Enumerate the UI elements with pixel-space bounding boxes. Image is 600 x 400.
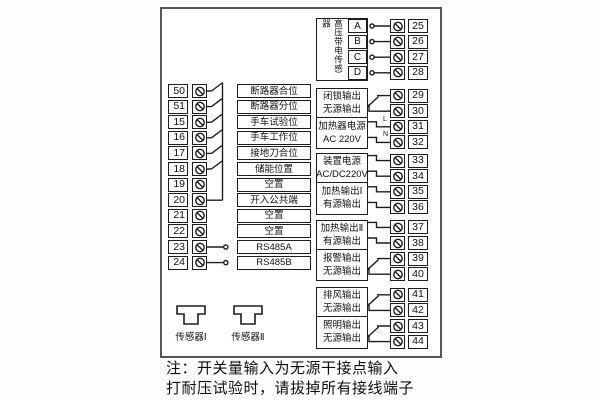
left-terminal-label: 断路器分位 xyxy=(237,100,311,114)
left-terminal-number: 24 xyxy=(168,256,188,270)
right-terminal-cell xyxy=(390,303,405,317)
screw-terminal-icon xyxy=(392,137,404,148)
screw-terminal-icon xyxy=(392,155,404,166)
left-terminal-label: 手车工作位 xyxy=(237,131,311,145)
sensor-2-icon xyxy=(234,306,262,324)
left-terminal-label: 空置 xyxy=(237,209,311,223)
right-terminal-number: 36 xyxy=(408,200,428,214)
right-terminal-number: 29 xyxy=(408,89,428,103)
left-terminal-cell xyxy=(192,209,207,223)
screw-terminal-icon xyxy=(392,171,404,182)
right-terminal-cell xyxy=(390,319,405,333)
left-terminal-number: 22 xyxy=(168,224,188,238)
right-terminal-number: 34 xyxy=(408,169,428,183)
left-terminal-number: 50 xyxy=(168,84,188,98)
left-terminal-label: 断路器合位 xyxy=(237,84,311,98)
right-terminal-number: 28 xyxy=(408,66,428,80)
direct-wires xyxy=(368,122,390,243)
output-section-box: 装置电源AC/DC220V xyxy=(316,153,368,184)
screw-terminal-icon xyxy=(194,179,206,190)
screw-terminal-icon xyxy=(392,289,404,300)
right-terminal-number: 27 xyxy=(408,50,428,64)
sensor-1-label: 传感器Ⅰ xyxy=(161,329,221,343)
screw-terminal-icon xyxy=(392,106,404,117)
right-terminal-cell xyxy=(390,236,405,250)
output-section-box: 报警输出无源输出 xyxy=(316,249,368,282)
left-terminal-number: 15 xyxy=(168,115,188,129)
left-terminal-cell xyxy=(192,146,207,160)
right-terminal-cell xyxy=(390,66,405,80)
right-terminal-number: 37 xyxy=(408,220,428,234)
sensor-channel-cell: D xyxy=(348,66,367,80)
screw-terminal-icon xyxy=(392,321,404,332)
output-section-label: AC 220V xyxy=(323,133,361,146)
output-section-label: 照明输出 xyxy=(323,319,361,332)
right-terminal-cell xyxy=(390,104,405,118)
right-terminal-number: 33 xyxy=(408,154,428,168)
output-section-box: 闭锁输出无源输出 xyxy=(316,88,368,119)
left-terminal-number: 16 xyxy=(168,131,188,145)
right-terminal-cell xyxy=(390,50,405,64)
channel-c-node xyxy=(370,55,374,59)
screw-terminal-icon xyxy=(194,132,206,143)
left-terminal-number: 17 xyxy=(168,146,188,160)
right-terminal-cell xyxy=(390,135,405,149)
left-terminal-label: 接地刀合位 xyxy=(237,146,311,160)
output-section-box: 照明输出无源输出 xyxy=(316,316,368,349)
right-terminal-cell xyxy=(390,19,405,33)
output-section-label: 无源输出 xyxy=(323,103,361,116)
line-wire-label: L xyxy=(383,116,387,123)
screw-terminal-icon xyxy=(392,253,404,264)
left-terminal-cell xyxy=(192,256,207,270)
right-terminal-number: 43 xyxy=(408,319,428,333)
rs485b-node xyxy=(224,261,228,265)
hv-sensor-title: 高压带电传感器 xyxy=(317,19,348,80)
screw-terminal-icon xyxy=(392,90,404,101)
sensor-2-label: 传感器Ⅱ xyxy=(218,329,278,343)
output-section-box: 加热器电源AC 220V xyxy=(316,117,368,149)
left-terminal-label: RS485B xyxy=(237,256,311,270)
output-section-label: 有源输出 xyxy=(323,235,361,248)
output-section-label: 无源输出 xyxy=(323,302,361,315)
left-terminal-cell xyxy=(192,162,207,176)
left-terminal-label: 开入公共端 xyxy=(237,193,311,207)
output-section-label: 排风输出 xyxy=(323,289,361,302)
output-section-label: 装置电源 xyxy=(323,155,361,168)
right-terminal-cell xyxy=(390,335,405,349)
screw-terminal-icon xyxy=(392,21,404,32)
right-terminal-number: 35 xyxy=(408,185,428,199)
left-terminal-label: 空置 xyxy=(237,224,311,238)
left-terminal-cell xyxy=(192,178,207,192)
channel-d-node xyxy=(370,71,374,75)
rs485a-node xyxy=(224,245,228,249)
right-terminal-cell xyxy=(390,267,405,281)
right-terminal-cell xyxy=(390,89,405,103)
right-terminal-number: 32 xyxy=(408,135,428,149)
right-terminal-cell xyxy=(390,185,405,199)
sensor-1-icon xyxy=(177,306,205,324)
screw-terminal-icon xyxy=(194,86,206,97)
output-section-box: 加热输出Ⅰ有源输出 xyxy=(316,182,368,215)
right-terminal-cell xyxy=(390,120,405,134)
channel-a-node xyxy=(370,24,374,28)
output-section-label: 加热器电源 xyxy=(318,120,366,133)
output-section-label: 报警输出 xyxy=(323,252,361,265)
note-line-1: 注：开关量输入为无源干接点输入 xyxy=(166,360,399,378)
left-terminal-cell xyxy=(192,224,207,238)
screw-terminal-icon xyxy=(392,305,404,316)
left-terminal-cell xyxy=(192,84,207,98)
screw-terminal-icon xyxy=(194,101,206,112)
left-terminal-number: 51 xyxy=(168,100,188,114)
neutral-wire-label: N xyxy=(383,131,388,138)
screw-terminal-icon xyxy=(392,186,404,197)
screw-terminal-icon xyxy=(392,52,404,63)
output-section-label: 加热输出Ⅱ xyxy=(321,222,364,235)
right-terminal-cell xyxy=(390,288,405,302)
right-terminal-number: 25 xyxy=(408,19,428,33)
right-terminal-cell xyxy=(390,35,405,49)
screw-terminal-icon xyxy=(392,238,404,249)
screw-terminal-icon xyxy=(194,195,206,206)
channel-wires xyxy=(374,26,390,73)
left-terminal-label: RS485A xyxy=(237,240,311,254)
right-terminal-cell xyxy=(390,220,405,234)
screw-terminal-icon xyxy=(392,222,404,233)
output-section-box: 加热输出Ⅱ有源输出 xyxy=(316,220,368,251)
note-line-2: 打耐压试验时，请拔掉所有接线端子 xyxy=(166,380,414,398)
screw-terminal-icon xyxy=(392,36,404,47)
left-terminal-number: 21 xyxy=(168,209,188,223)
screw-terminal-icon xyxy=(194,257,206,268)
left-terminal-cell xyxy=(192,115,207,129)
right-terminal-cell xyxy=(390,200,405,214)
screw-terminal-icon xyxy=(194,117,206,128)
right-terminal-cell xyxy=(390,154,405,168)
output-section-box: 排风输出无源输出 xyxy=(316,287,368,318)
sensor-channel-cell: A xyxy=(348,19,367,33)
screw-terminal-icon xyxy=(392,269,404,280)
terminal-wiring-diagram: 高压带电传感器 L N 传感器Ⅰ 传感器Ⅱ 注：开关量输入为无源干接点输入 打耐… xyxy=(0,0,600,400)
right-terminal-number: 44 xyxy=(408,335,428,349)
output-section-label: 加热输出Ⅰ xyxy=(322,185,363,198)
right-terminal-number: 30 xyxy=(408,104,428,118)
left-terminal-number: 20 xyxy=(168,193,188,207)
left-terminal-number: 19 xyxy=(168,178,188,192)
output-section-label: 闭锁输出 xyxy=(323,90,361,103)
screw-terminal-icon xyxy=(194,226,206,237)
sensor-channel-cell: C xyxy=(348,50,367,64)
output-section-label: 无源输出 xyxy=(323,265,361,278)
left-terminal-cell xyxy=(192,240,207,254)
left-terminal-number: 18 xyxy=(168,162,188,176)
screw-terminal-icon xyxy=(194,148,206,159)
left-terminal-label: 空置 xyxy=(237,178,311,192)
output-section-label: 有源输出 xyxy=(323,198,361,211)
left-terminal-label: 储能位置 xyxy=(237,162,311,176)
rs485-wires xyxy=(207,247,224,263)
screw-terminal-icon xyxy=(194,242,206,253)
right-terminal-number: 42 xyxy=(408,303,428,317)
left-terminal-cell xyxy=(192,100,207,114)
right-terminal-cell xyxy=(390,169,405,183)
screw-terminal-icon xyxy=(392,202,404,213)
left-terminal-label: 手车试验位 xyxy=(237,115,311,129)
screw-terminal-icon xyxy=(392,121,404,132)
left-terminal-cell xyxy=(192,131,207,145)
output-section-label: 无源输出 xyxy=(323,332,361,345)
screw-terminal-icon xyxy=(392,336,404,347)
sensor-channel-cell: B xyxy=(348,35,367,49)
left-terminal-cell xyxy=(192,193,207,207)
right-terminal-cell xyxy=(390,252,405,266)
right-terminal-number: 38 xyxy=(408,236,428,250)
screw-terminal-icon xyxy=(194,164,206,175)
screw-terminal-icon xyxy=(194,210,206,221)
right-terminal-number: 40 xyxy=(408,267,428,281)
input-switch-symbols xyxy=(207,83,223,170)
right-terminal-number: 26 xyxy=(408,35,428,49)
channel-b-node xyxy=(370,40,374,44)
right-terminal-number: 39 xyxy=(408,252,428,266)
screw-terminal-icon xyxy=(392,67,404,78)
output-section-label: AC/DC220V xyxy=(316,168,368,181)
right-terminal-number: 41 xyxy=(408,288,428,302)
left-terminal-number: 23 xyxy=(168,240,188,254)
right-terminal-number: 31 xyxy=(408,120,428,134)
